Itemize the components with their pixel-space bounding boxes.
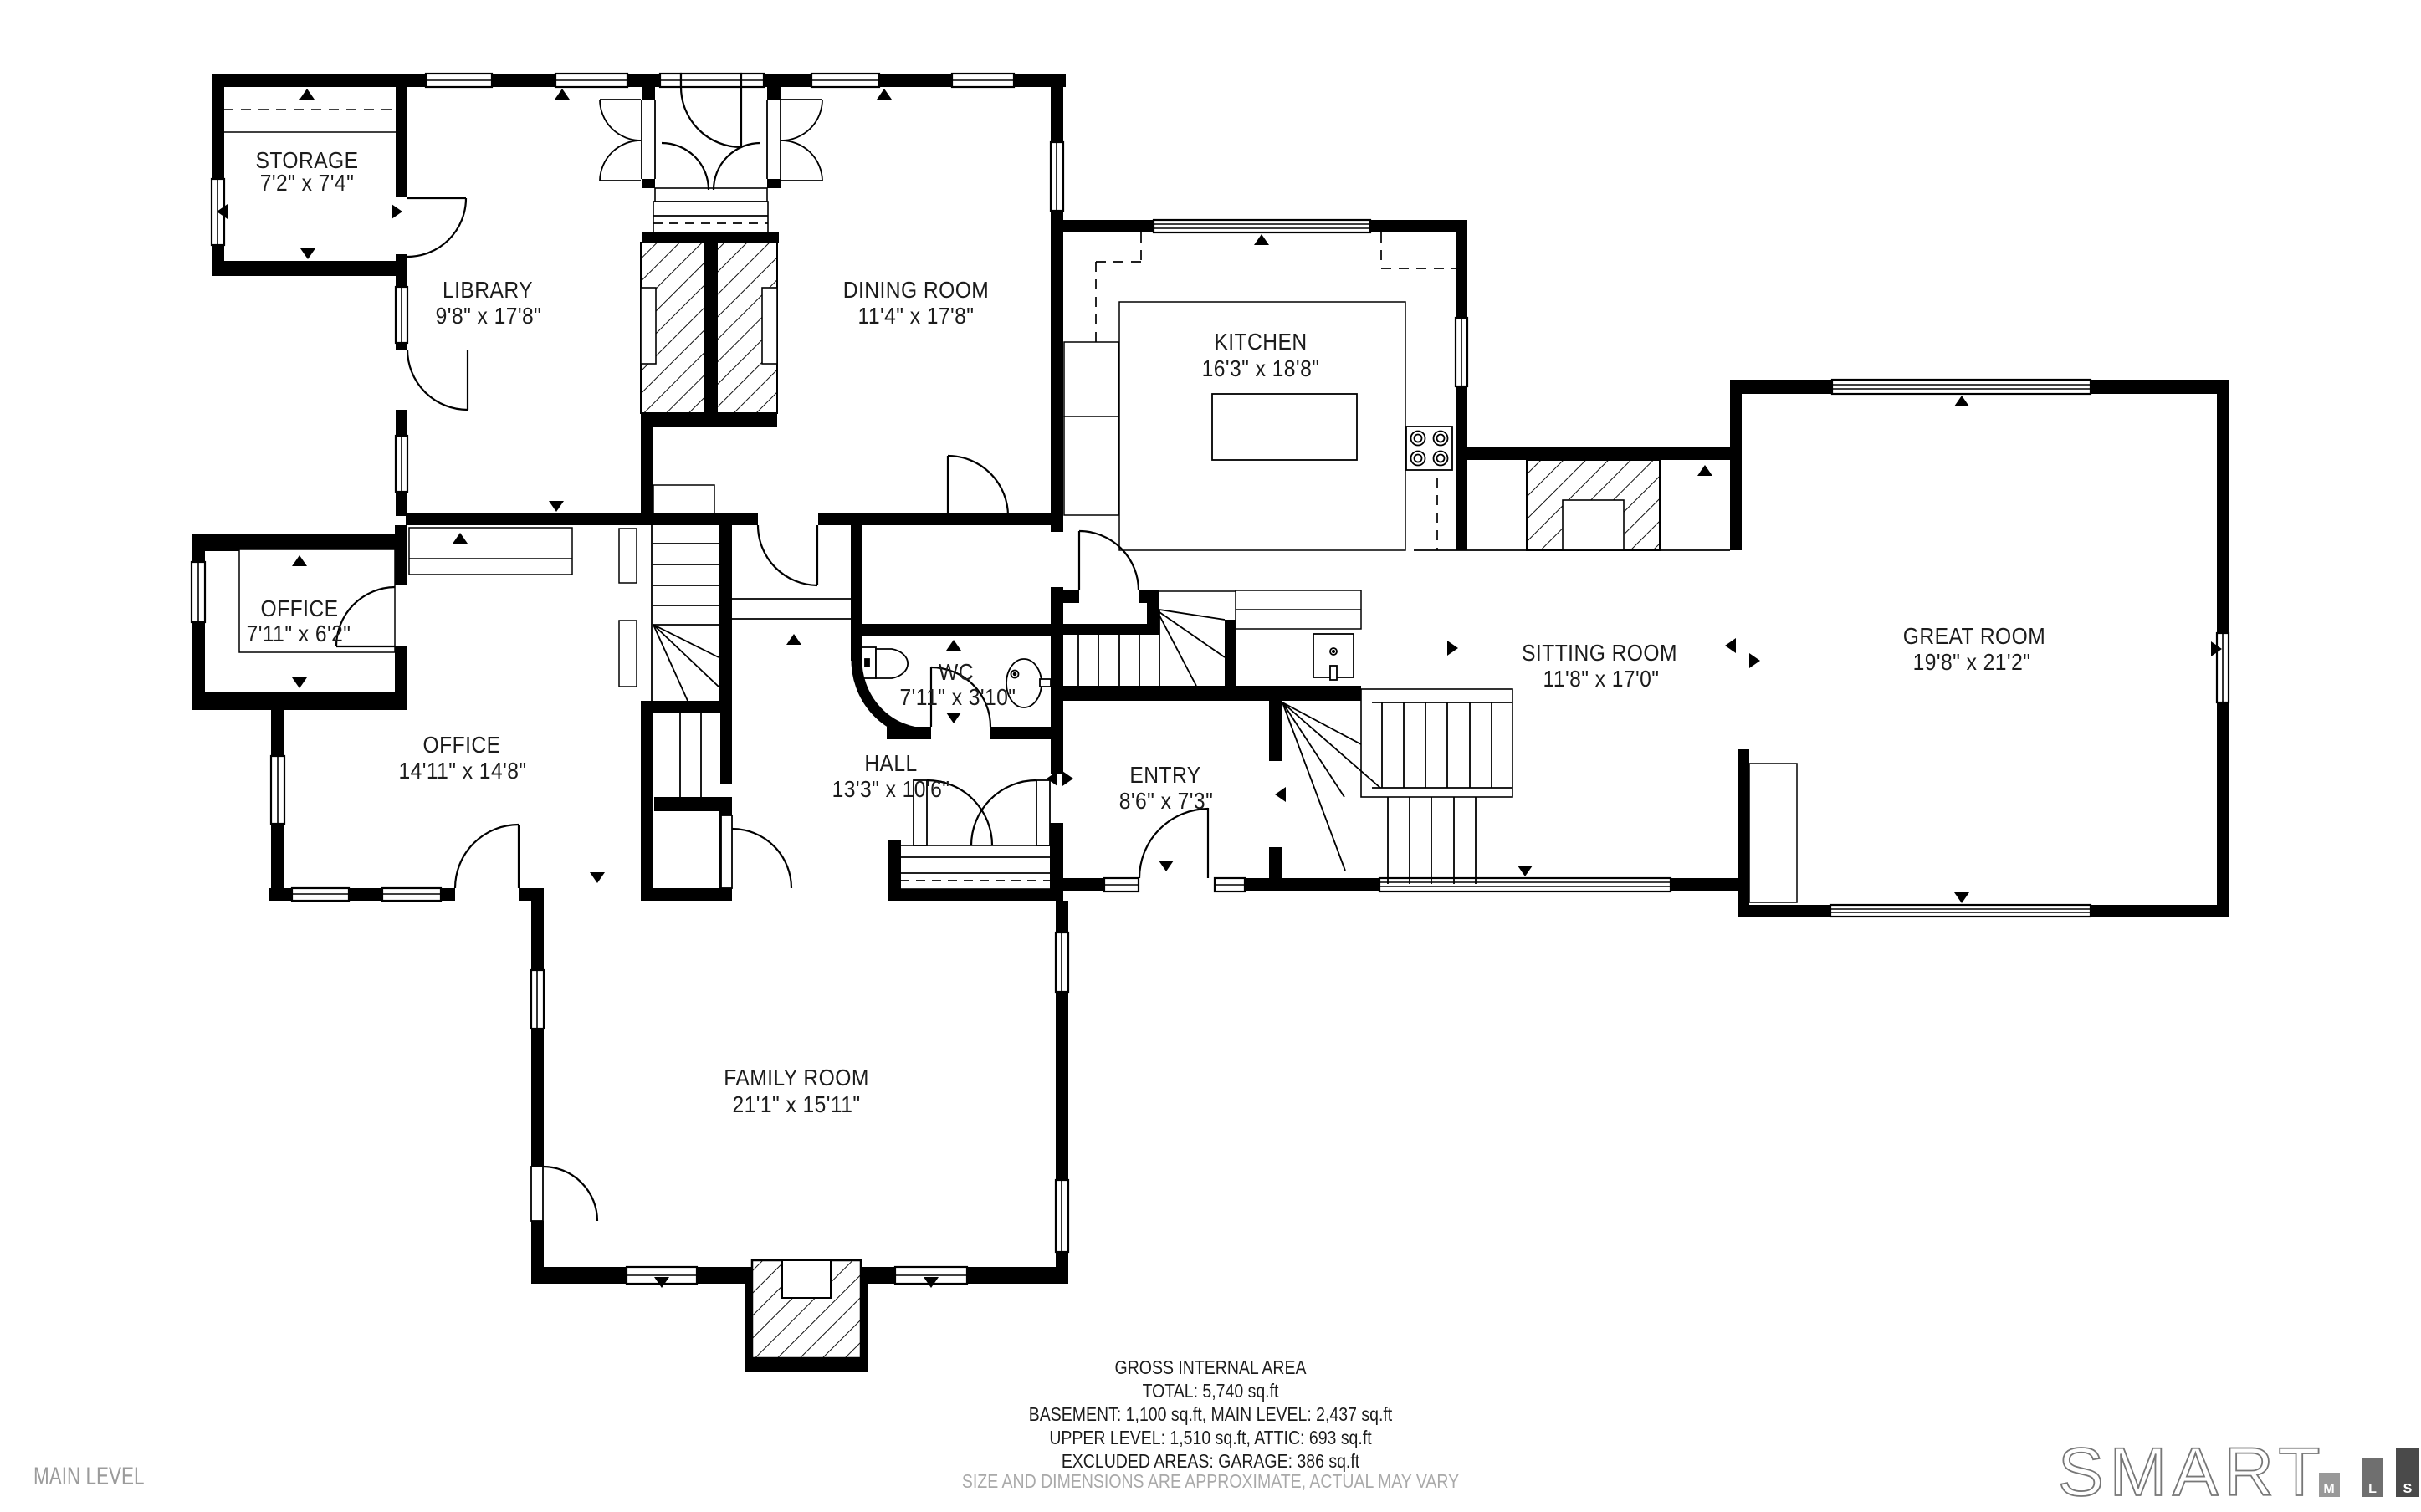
svg-text:L: L <box>2368 1482 2377 1496</box>
svg-text:7'11" x 6'2": 7'11" x 6'2" <box>247 621 351 647</box>
svg-text:14'11" x 14'8": 14'11" x 14'8" <box>398 758 526 784</box>
svg-text:LIBRARY: LIBRARY <box>443 277 533 304</box>
svg-text:WC: WC <box>939 659 974 686</box>
svg-text:7'2" x 7'4": 7'2" x 7'4" <box>260 170 355 197</box>
svg-text:13'3" x 10'6": 13'3" x 10'6" <box>832 776 950 803</box>
svg-text:8'6" x 7'3": 8'6" x 7'3" <box>1119 788 1214 815</box>
svg-text:SITTING ROOM: SITTING ROOM <box>1522 640 1677 667</box>
svg-text:HALL: HALL <box>864 750 917 777</box>
svg-text:DINING ROOM: DINING ROOM <box>843 277 989 304</box>
svg-text:FAMILY ROOM: FAMILY ROOM <box>724 1065 869 1091</box>
svg-text:S: S <box>2403 1482 2413 1496</box>
svg-text:19'8" x 21'2": 19'8" x 21'2" <box>1913 649 2031 676</box>
svg-text:9'8" x 17'8": 9'8" x 17'8" <box>436 303 542 329</box>
svg-text:21'1" x 15'11": 21'1" x 15'11" <box>732 1091 860 1118</box>
svg-text:ENTRY: ENTRY <box>1129 762 1200 789</box>
svg-text:11'8" x 17'0": 11'8" x 17'0" <box>1543 666 1660 692</box>
svg-text:OFFICE: OFFICE <box>423 732 501 759</box>
svg-text:GREAT ROOM: GREAT ROOM <box>1903 623 2045 650</box>
svg-text:7'11" x 3'10": 7'11" x 3'10" <box>900 684 1016 711</box>
svg-text:SIZE AND DIMENSIONS ARE APPROX: SIZE AND DIMENSIONS ARE APPROXIMATE, ACT… <box>962 1469 1459 1492</box>
svg-text:UPPER LEVEL: 1,510 sq.ft, ATTI: UPPER LEVEL: 1,510 sq.ft, ATTIC: 693 sq.… <box>1049 1426 1371 1448</box>
svg-text:OFFICE: OFFICE <box>261 595 339 622</box>
svg-text:M: M <box>2323 1482 2334 1496</box>
svg-text:11'4" x 17'8": 11'4" x 17'8" <box>858 303 975 329</box>
svg-text:BASEMENT: 1,100 sq.ft, MAIN LE: BASEMENT: 1,100 sq.ft, MAIN LEVEL: 2,437… <box>1029 1402 1392 1425</box>
svg-text:MAIN LEVEL: MAIN LEVEL <box>33 1462 144 1490</box>
svg-text:16'3" x 18'8": 16'3" x 18'8" <box>1202 355 1320 382</box>
svg-text:SMART: SMART <box>2058 1434 2326 1510</box>
svg-text:KITCHEN: KITCHEN <box>1214 329 1307 355</box>
svg-text:TOTAL: 5,740 sq.ft: TOTAL: 5,740 sq.ft <box>1143 1379 1279 1402</box>
svg-text:GROSS INTERNAL AREA: GROSS INTERNAL AREA <box>1115 1356 1307 1378</box>
